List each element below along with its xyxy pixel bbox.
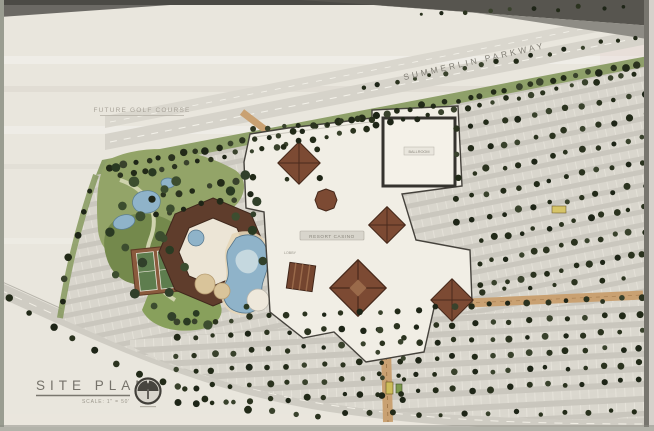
tree-icon [282,124,286,128]
tree-icon [322,345,326,349]
tree-icon [451,337,456,342]
tree-icon [416,389,420,393]
tree-icon [283,312,290,319]
tree-icon [582,315,588,321]
tree-icon [250,126,256,132]
tree-icon [598,211,604,217]
tree-icon [160,378,167,385]
tree-icon [193,335,198,340]
tree-icon [181,207,186,212]
tree-icon [465,105,471,111]
tree-icon [580,333,586,339]
tree-icon [264,330,269,335]
tree-icon [583,366,588,371]
tree-icon [490,353,496,359]
tree-icon [156,155,161,160]
tree-icon [543,247,550,254]
tree-icon [621,276,625,280]
tree-icon [252,197,261,206]
tree-icon [287,331,292,336]
tree-icon [559,243,564,248]
tree-icon [611,120,617,126]
tree-icon [469,337,474,342]
tree-icon [586,261,593,268]
tree-icon [210,401,215,406]
tree-icon [574,263,580,269]
tree-icon [216,145,223,152]
tree-icon [580,126,586,132]
tree-icon [546,350,552,356]
tree-icon [147,158,153,164]
tree-icon [360,328,366,334]
tree-icon [183,318,191,326]
tree-icon [213,319,219,325]
tree-icon [491,319,496,324]
tree-icon [523,300,530,307]
tree-icon [539,412,543,416]
tree-icon [348,117,355,124]
tree-icon [400,397,406,403]
tree-icon [453,196,459,202]
tree-icon [244,406,252,414]
tree-icon [159,167,164,172]
tree-icon [468,145,474,151]
tree-icon [528,92,534,98]
tree-icon [408,107,413,112]
tree-icon [367,410,373,416]
building-label: RESORT CASINO [309,234,355,239]
tree-icon [581,46,585,50]
tree-icon [212,350,219,357]
garden-pergola [286,262,315,291]
tree-icon [166,204,175,213]
tree-icon [609,408,613,412]
site-plan-photo: SUMMERLIN PARKWAY FUTURE GOLF COURSE RES… [0,0,654,431]
tree-icon [526,349,533,356]
tree-icon [380,341,386,347]
golf-course-label: FUTURE GOLF COURSE [93,107,190,114]
tree-icon [618,378,623,383]
tree-icon [322,313,326,317]
tree-icon [618,73,624,79]
pavilion-octagon [315,189,337,211]
tree-icon [463,11,468,16]
tree-icon [210,382,215,387]
tree-icon [281,144,287,150]
tree-icon [176,190,183,197]
tree-icon [87,189,92,194]
tree-icon [456,99,461,104]
tree-icon [165,288,174,297]
tree-icon [394,323,400,329]
tree-icon [547,200,552,205]
tree-icon [449,353,455,359]
tree-icon [583,348,589,354]
tree-icon [532,6,537,11]
tree-icon [401,335,407,341]
tree-icon [81,209,87,215]
tree-icon [338,310,343,315]
tree-icon [433,387,439,393]
tree-icon [300,129,305,134]
tree-icon [520,231,525,236]
tree-icon [207,183,212,188]
tree-icon [310,137,317,144]
tree-icon [387,119,394,126]
tree-icon [582,79,588,85]
tree-icon [148,168,156,176]
tree-icon [165,246,174,255]
tree-icon [232,178,239,185]
tree-icon [489,257,494,262]
tree-icon [198,201,204,207]
tree-icon [302,312,307,317]
tree-icon [613,231,618,236]
tree-icon [112,271,119,278]
tree-icon [632,409,637,414]
tree-icon [189,188,195,194]
tree-icon [625,229,632,236]
tree-icon [548,52,552,56]
tree-icon [343,392,347,396]
tree-icon [542,333,549,340]
tree-icon [640,135,645,140]
tree-icon [229,319,234,324]
tree-icon [442,99,448,105]
tree-icon [469,217,475,223]
tree-icon [490,100,494,104]
tree-icon [361,341,366,346]
tree-icon [420,13,423,16]
tree-icon [174,334,181,341]
tree-icon [550,153,556,159]
tree-icon [223,399,228,404]
tree-icon [525,335,530,340]
tree-icon [138,258,148,268]
tree-icon [517,97,521,101]
garden-pond [133,191,161,213]
tree-icon [585,238,590,243]
tree-icon [191,353,196,358]
tree-icon [579,103,585,109]
tree-icon [478,262,483,267]
tree-icon [202,396,209,403]
tree-icon [530,226,535,231]
tree-icon [543,365,548,370]
tree-icon [570,83,574,87]
tree-icon [363,126,370,133]
tree-icon [565,316,570,321]
tree-icon [546,300,552,306]
tree-icon [296,123,301,128]
tree-icon [633,61,640,68]
tree-icon [528,286,532,290]
tree-icon [602,379,608,385]
tree-icon [626,94,632,100]
tree-icon [506,320,511,325]
tree-icon [564,298,569,303]
tree-icon [530,272,536,278]
tree-icon [514,116,521,123]
tree-icon [505,232,512,239]
tree-icon [571,239,578,246]
tree-icon [230,351,236,357]
tree-icon [153,212,159,218]
tree-icon [290,128,297,135]
scale-note: SCALE: 1" = 50' [82,399,130,405]
tree-icon [310,122,317,129]
tree-icon [61,276,68,283]
tree-icon [540,90,545,95]
tree-icon [536,78,544,86]
annex-label: BALLROOM [408,150,429,154]
tree-icon [373,122,380,129]
tree-icon [527,81,533,87]
tree-icon [230,366,235,371]
tree-icon [250,211,256,217]
tree-icon [453,219,460,226]
tree-icon [64,253,72,261]
tree-icon [514,140,520,146]
tree-icon [598,237,604,243]
tree-icon [579,382,584,387]
tree-icon [592,191,598,197]
tree-icon [301,344,306,349]
tree-icon [637,311,644,318]
tree-icon [519,252,524,257]
tree-icon [439,413,443,417]
tree-icon [413,372,418,377]
tree-icon [617,330,622,335]
tree-icon [201,147,209,155]
tree-icon [433,322,439,328]
tree-icon [473,171,478,176]
tree-icon [268,396,273,401]
tree-icon [636,377,642,383]
tree-icon [564,174,569,179]
tree-icon [636,359,642,365]
tree-icon [274,144,281,151]
tree-icon [167,312,176,321]
tree-icon [505,279,510,284]
tree-icon [246,364,253,371]
tree-icon [598,329,604,335]
tree-icon [508,7,512,11]
tree-icon [322,379,328,385]
tree-icon [180,149,187,156]
tree-icon [304,328,311,335]
tree-icon [315,414,321,420]
tree-icon [554,87,558,91]
tree-icon [296,138,302,144]
tree-icon [438,109,444,115]
tree-icon [452,303,459,310]
tree-icon [414,324,419,329]
tree-icon [217,198,224,205]
tree-icon [285,177,290,182]
tree-icon [610,190,615,195]
tree-icon [566,367,571,372]
tree-icon [530,204,536,210]
tree-icon [491,370,496,375]
tree-icon [593,79,600,86]
tree-icon [180,263,189,272]
tree-icon [527,382,533,388]
tree-icon [182,386,187,391]
tree-icon [611,142,616,147]
tree-icon [563,150,568,155]
tree-icon [611,65,617,71]
tree-icon [544,271,550,277]
tree-icon [231,400,236,405]
tree-icon [418,101,425,108]
tree-icon [285,348,290,353]
tree-icon [550,78,556,84]
tree-icon [75,232,82,239]
tree-icon [618,363,625,370]
tree-icon [222,155,227,160]
tree-icon [194,369,199,374]
tree-icon [602,6,606,10]
tree-icon [247,398,253,404]
tree-icon [226,186,235,195]
tree-icon [559,268,564,273]
tree-icon [174,367,179,372]
tree-icon [484,191,490,197]
tree-icon [339,376,345,382]
tree-icon [622,64,630,72]
tree-icon [602,312,608,318]
tree-icon [622,5,626,9]
tree-icon [398,391,404,397]
tree-icon [244,304,250,310]
tree-icon [502,212,507,217]
tree-icon [193,386,199,392]
tree-icon [241,170,251,180]
tree-icon [602,345,607,350]
tree-icon [142,168,148,174]
tree-icon [118,172,124,178]
tree-icon [208,368,214,374]
tree-icon [614,209,621,216]
tree-icon [276,133,281,138]
tree-icon [595,122,601,128]
tree-icon [611,98,616,103]
tree-icon [339,326,346,333]
tree-icon [508,352,514,358]
tree-icon [450,385,456,391]
lobby-label: LOBBY [284,251,297,255]
tree-icon [118,202,127,211]
tree-icon [266,313,271,318]
tree-icon [526,317,532,323]
tree-icon [472,320,478,326]
tree-icon [302,379,308,385]
tree-icon [203,320,212,329]
tree-icon [283,364,289,370]
tree-icon [264,365,270,371]
tree-icon [579,146,586,153]
tree-icon [547,179,552,184]
tree-icon [621,347,627,353]
tree-icon [259,146,264,151]
tree-icon [455,175,461,181]
tree-icon [342,410,348,416]
tree-icon [633,36,637,40]
site-plan-drawing: SUMMERLIN PARKWAY FUTURE GOLF COURSE RES… [0,0,654,431]
tree-icon [228,332,233,337]
tree-icon [599,39,603,43]
tree-icon [395,308,401,314]
tree-icon [610,165,615,170]
tree-icon [378,310,383,315]
tree-icon [321,395,326,400]
tree-icon [487,301,492,306]
tree-icon [321,326,327,332]
tree-icon [515,162,521,168]
tree-icon [340,362,345,367]
tree-icon [451,369,458,376]
tree-icon [172,164,177,169]
tree-icon [468,124,473,129]
tree-icon [505,301,510,306]
tree-icon [596,100,602,106]
tree-icon [491,280,497,286]
tree-icon [112,163,121,172]
tree-icon [416,412,422,418]
tree-icon [133,160,138,165]
emblem-caption-smudge [140,406,156,407]
tree-icon [505,368,510,373]
tree-icon [532,112,538,118]
tree-icon [608,75,614,81]
tree-icon [210,333,214,337]
tree-icon [322,361,327,366]
tree-icon [265,126,271,132]
tree-icon [325,135,329,139]
tree-icon [361,376,366,381]
tree-icon [600,299,605,304]
tree-icon [356,359,363,366]
tree-icon [516,185,522,191]
tree-icon [628,252,635,259]
tree-icon [228,141,234,147]
tree-icon [547,315,553,321]
tree-icon [355,116,361,122]
tree-icon [325,122,330,127]
tree-icon [135,211,145,221]
tree-icon [469,388,476,395]
tree-icon [462,411,468,417]
tree-icon [161,185,169,193]
tree-icon [252,136,257,141]
tree-icon [304,394,311,401]
tree-icon [175,399,182,406]
tree-icon [505,336,512,343]
tree-icon [483,119,489,125]
tree-icon [487,214,493,220]
tree-icon [616,39,620,43]
tree-icon [561,47,566,52]
tree-icon [247,191,253,197]
tree-icon [514,409,519,414]
tree-icon [514,59,519,64]
tree-icon [245,331,251,337]
tree-icon [184,160,190,166]
tree-icon [584,296,590,302]
tree-icon [395,80,400,85]
tree-icon [545,381,551,387]
